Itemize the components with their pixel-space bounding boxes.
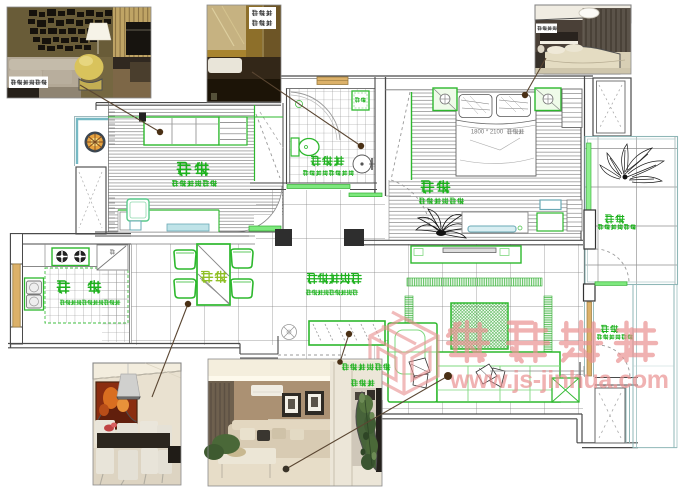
svg-text:1800 * 2100: 1800 * 2100 [471, 130, 504, 136]
svg-text:www.js-jinhua.com: www.js-jinhua.com [449, 366, 669, 394]
